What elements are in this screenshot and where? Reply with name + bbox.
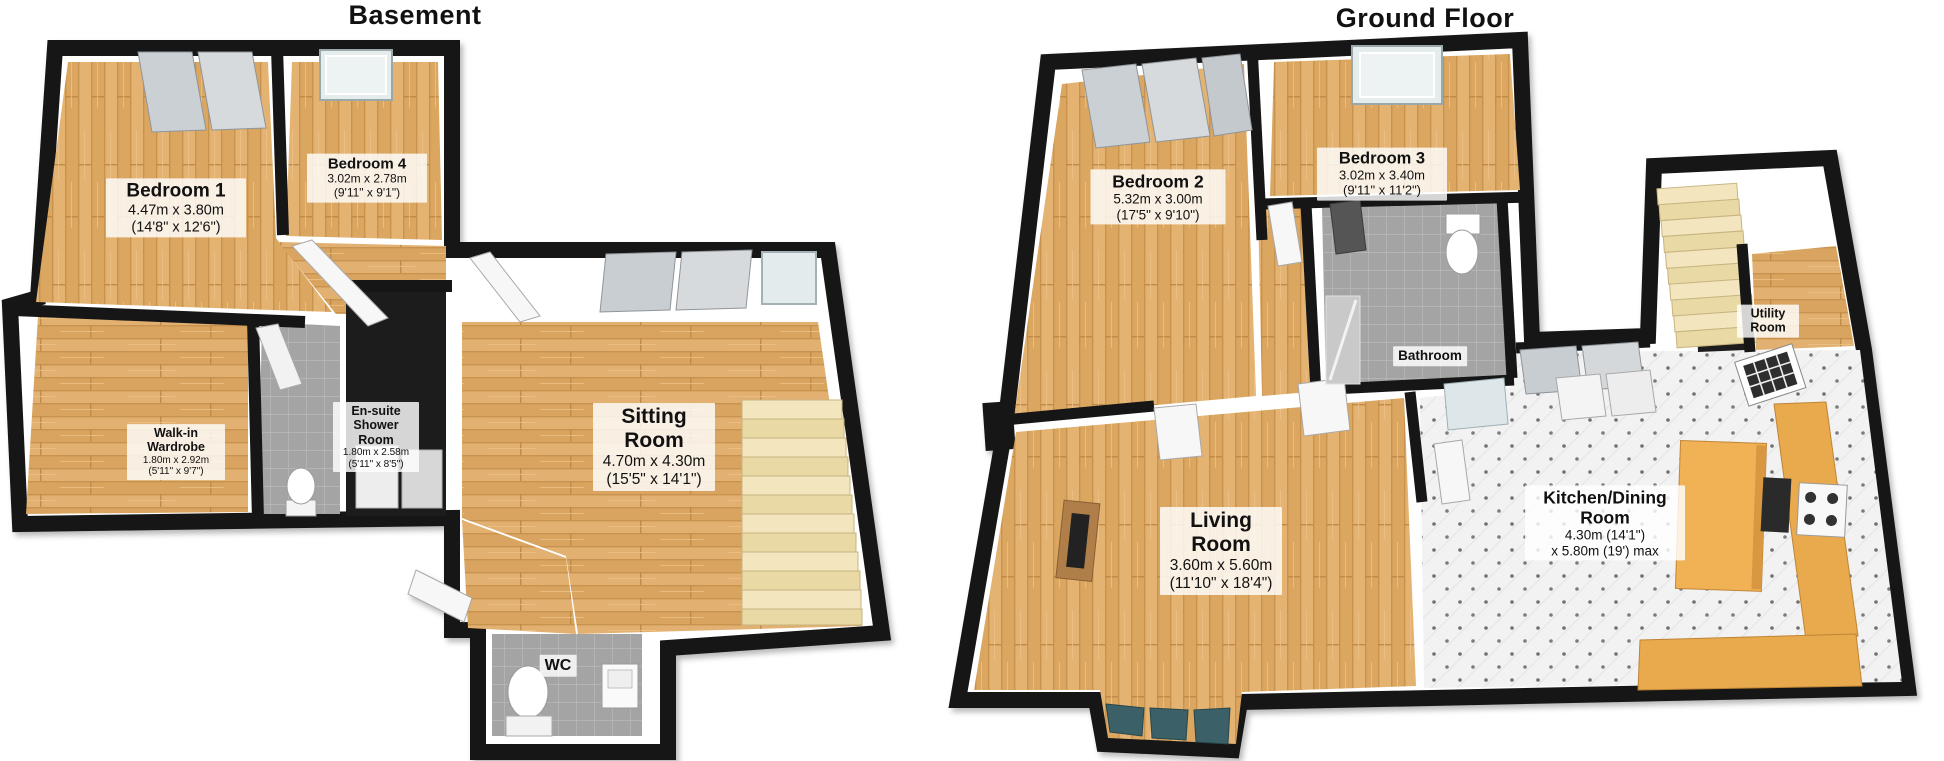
bathroom-door-bottom — [1298, 378, 1350, 436]
room-dims-imperial: (11'10" x 18'4") — [1165, 575, 1277, 593]
room-dims-imperial: (5'11" x 9'7") — [132, 466, 220, 478]
ground-floor-plan — [958, 40, 1908, 750]
floorplan-drawing — [0, 0, 1944, 761]
bathroom-toilet — [1446, 214, 1480, 274]
room-label-bedroom-3: Bedroom 3 3.02m x 3.40m (9'11" x 11'2") — [1317, 148, 1447, 201]
hob — [1797, 483, 1848, 537]
room-dims-metric: 4.70m x 4.30m — [598, 453, 710, 471]
room-name: Sitting Room — [598, 405, 710, 453]
room-label-bathroom: Bathroom — [1393, 346, 1467, 366]
room-label-bedroom-4: Bedroom 4 3.02m x 2.78m (9'11" x 9'1") — [307, 154, 427, 203]
basement-title: Basement — [348, 0, 481, 31]
wc-basin — [602, 664, 638, 708]
room-dims-imperial: (17'5" x 9'10") — [1096, 207, 1221, 223]
room-name: WC — [545, 657, 572, 675]
sitting-room-window — [762, 252, 816, 304]
kitchen-french-door-glass — [1444, 378, 1508, 430]
room-label-walk-in-wardrobe: Walk-in Wardrobe 1.80m x 2.92m (5'11" x … — [127, 424, 225, 480]
kitchen-counter-bottom — [1638, 634, 1862, 690]
room-label-bedroom-1: Bedroom 1 4.47m x 3.80m (14'8" x 12'6") — [106, 178, 246, 237]
room-dims-metric: 4.30m (14'1") — [1530, 528, 1680, 544]
ground-floor-title: Ground Floor — [1336, 3, 1514, 34]
kitchen-island — [1675, 441, 1766, 592]
floorplan-canvas: Basement Ground Floor Bedroom 1 4.47m x … — [0, 0, 1944, 761]
room-dims-imperial: (15'5" x 14'1") — [598, 471, 710, 489]
room-dims-imperial: (14'8" x 12'6") — [111, 219, 241, 236]
room-dims-metric: 3.02m x 3.40m — [1322, 169, 1442, 184]
room-name: Bedroom 4 — [312, 156, 422, 173]
room-dims-metric: 1.80m x 2.58m — [338, 447, 414, 459]
room-label-kitchen-dining-room: Kitchen/Dining Room 4.30m (14'1") x 5.80… — [1525, 485, 1685, 560]
room-dims-imperial: x 5.80m (19') max — [1530, 543, 1680, 559]
room-dims-metric: 5.32m x 3.00m — [1096, 192, 1221, 208]
bedroom-2-wardrobe-panels — [1082, 54, 1252, 148]
basement-plan — [10, 48, 882, 752]
bedroom-4-window — [320, 50, 392, 100]
bathroom-shower — [1326, 296, 1360, 384]
room-name: Bathroom — [1398, 348, 1462, 364]
chimney-breast — [982, 401, 1015, 451]
room-name: Utility Room — [1742, 307, 1794, 336]
en-suite-toilet — [286, 468, 316, 516]
room-name: Walk-in Wardrobe — [132, 426, 220, 455]
basement-staircase — [742, 400, 862, 625]
room-dims-metric: 3.60m x 5.60m — [1165, 557, 1277, 575]
bedroom-3-window — [1352, 46, 1442, 104]
room-name: Kitchen/Dining Room — [1530, 487, 1680, 527]
room-dims-metric: 1.80m x 2.92m — [132, 455, 220, 467]
oven — [1761, 477, 1792, 532]
room-name: En-suite Shower Room — [338, 404, 414, 447]
room-label-wc: WC — [540, 655, 577, 677]
bathroom-door-top — [1330, 200, 1366, 254]
room-dims-imperial: (9'11" x 11'2") — [1322, 183, 1442, 198]
room-label-sitting-room: Sitting Room 4.70m x 4.30m (15'5" x 14'1… — [593, 403, 715, 491]
tv-unit — [1056, 500, 1100, 581]
room-dims-metric: 4.47m x 3.80m — [111, 202, 241, 219]
room-dims-imperial: (9'11" x 9'1") — [312, 187, 422, 201]
room-dims-imperial: (5'11" x 8'5") — [338, 459, 414, 471]
room-name: Bedroom 2 — [1096, 171, 1221, 191]
room-label-bedroom-2: Bedroom 2 5.32m x 3.00m (17'5" x 9'10") — [1091, 169, 1226, 224]
walk-in-wardrobe-floor — [26, 316, 248, 514]
room-label-utility-room: Utility Room — [1737, 305, 1799, 338]
room-dims-metric: 3.02m x 2.78m — [312, 173, 422, 187]
room-name: Bedroom 1 — [111, 180, 241, 202]
room-label-en-suite-shower-room: En-suite Shower Room 1.80m x 2.58m (5'11… — [333, 402, 419, 472]
room-label-living-room: Living Room 3.60m x 5.60m (11'10" x 18'4… — [1160, 507, 1282, 595]
bedroom-2-door — [1154, 404, 1202, 460]
room-name: Living Room — [1165, 509, 1277, 557]
room-name: Bedroom 3 — [1322, 150, 1442, 169]
